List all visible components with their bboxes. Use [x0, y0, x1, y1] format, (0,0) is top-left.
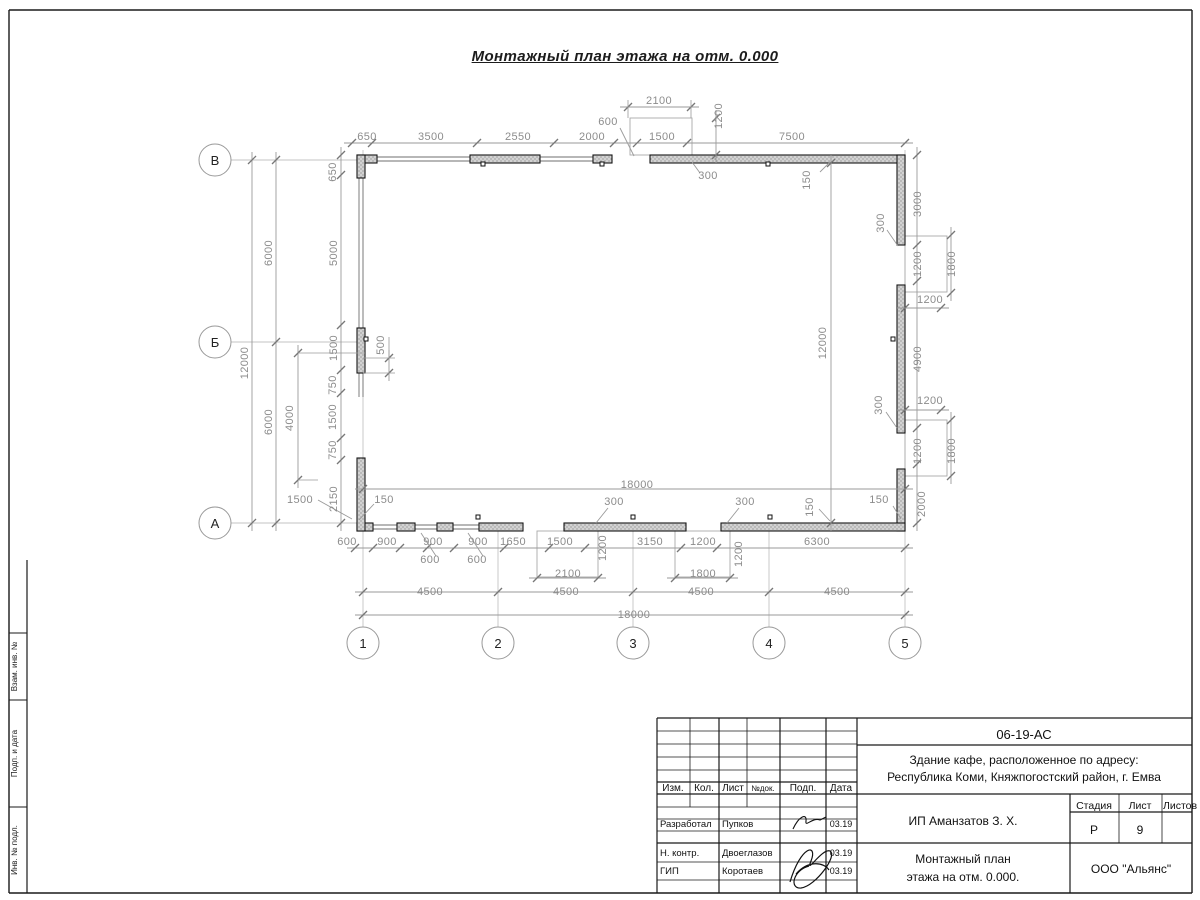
dimension-label: 1200: [912, 251, 924, 277]
signature: [793, 817, 826, 829]
date-value: 03.19: [830, 866, 853, 876]
dimension-label: 1200: [597, 535, 609, 561]
dimension-label: 7500: [779, 131, 805, 143]
dimension-label: 750: [327, 440, 339, 460]
dimension-label: 1800: [690, 568, 716, 580]
dimension-label: 3000: [912, 191, 924, 217]
dimension-label: 2000: [916, 491, 928, 517]
dimension-label: 750: [327, 375, 339, 395]
project-name: Здание кафе, расположенное по адресу:: [909, 753, 1138, 767]
dimension-label: 1200: [713, 103, 725, 129]
client-name: ИП Аманзатов З. Х.: [908, 814, 1017, 828]
label: Лист: [1129, 800, 1152, 812]
dimension-label: 6300: [804, 536, 830, 548]
dimension-label: 4900: [912, 346, 924, 372]
dimension-label: 6000: [263, 240, 275, 266]
leader-line: [727, 508, 739, 523]
dimension-label: 300: [604, 496, 624, 508]
dimension-label: 1200: [912, 438, 924, 464]
leader-line: [620, 128, 634, 156]
leader-line: [887, 230, 898, 246]
strip-label: Подп. и дата: [10, 729, 19, 777]
axis-label: 1: [359, 636, 366, 651]
dimension-label: 3150: [637, 536, 663, 548]
anchor-mark: [631, 515, 635, 519]
dimension-label: 1200: [917, 294, 943, 306]
doc-number: 06-19-АС: [996, 727, 1051, 742]
wall-segment: [357, 328, 365, 373]
wall-segment: [721, 523, 905, 531]
dimension-label: 12000: [817, 327, 829, 360]
axis-label: 5: [901, 636, 908, 651]
dimension-label: 300: [698, 170, 718, 182]
label: Кол.: [694, 783, 714, 794]
label: Подп.: [790, 783, 817, 794]
dimension-label: 1650: [500, 536, 526, 548]
anchor-mark: [766, 162, 770, 166]
leader-line: [819, 509, 830, 521]
anchor-mark: [364, 337, 368, 341]
wall-segment: [479, 523, 523, 531]
dimension-label: 1200: [917, 395, 943, 407]
dimension-label: 900: [377, 536, 397, 548]
dimension-label: 150: [869, 494, 889, 506]
dimension-label: 600: [598, 116, 618, 128]
dimension-label: 4500: [553, 586, 579, 598]
wall-segment: [897, 155, 905, 245]
axis-label: 2: [494, 636, 501, 651]
dimension-label: 1500: [327, 404, 339, 430]
plan-title: этажа на отм. 0.000.: [907, 870, 1020, 884]
dimension-label: 6000: [263, 409, 275, 435]
dimension-label: 1800: [946, 251, 958, 277]
dimension-label: 300: [873, 395, 885, 415]
dimension-label: 5000: [328, 240, 340, 266]
dimension-label: 1500: [649, 131, 675, 143]
dimension-label: 500: [375, 335, 387, 355]
date-value: 03.19: [830, 848, 853, 858]
wall-segment: [564, 523, 686, 531]
dimension-label: 4500: [417, 586, 443, 598]
wall-segment: [437, 523, 453, 531]
dimension-label: 600: [420, 554, 440, 566]
dimension-label: 4500: [688, 586, 714, 598]
axis-label: 4: [765, 636, 772, 651]
dimension-label: 150: [374, 494, 394, 506]
dimension-label: 150: [804, 497, 816, 517]
dimension-label: 2100: [555, 568, 581, 580]
anchor-mark: [600, 162, 604, 166]
label: Лист: [722, 783, 744, 794]
dimension-label: 1500: [328, 335, 340, 361]
role-label: Н. контр.: [660, 848, 699, 859]
role-label: ГИП: [660, 866, 679, 877]
dimension-label: 1200: [733, 541, 745, 567]
anchor-mark: [891, 337, 895, 341]
axis-label: Б: [211, 335, 220, 350]
dimension-label: 1500: [547, 536, 573, 548]
dimension-label: 300: [875, 213, 887, 233]
anchor-mark: [481, 162, 485, 166]
dimension-label: 18000: [618, 609, 651, 621]
dimension-label: 2150: [328, 486, 340, 512]
plan-title: Монтажный план: [915, 852, 1011, 866]
project-name: Республика Коми, Княжпогостский район, г…: [887, 770, 1161, 784]
dimension-label: 4000: [284, 405, 296, 431]
anchor-mark: [768, 515, 772, 519]
dimension-label: 4500: [824, 586, 850, 598]
role-label: Разработал: [660, 819, 712, 830]
dimension-label: 900: [423, 536, 443, 548]
dimension-label: 600: [337, 536, 357, 548]
person-name: Двоеглазов: [722, 848, 773, 859]
leader-line: [596, 508, 608, 523]
dimension-label: 1200: [690, 536, 716, 548]
dimension-label: 300: [735, 496, 755, 508]
dimension-label: 2000: [579, 131, 605, 143]
wall-segment: [357, 155, 365, 178]
dimension-label: 650: [327, 162, 339, 182]
drawing-title: Монтажный план этажа на отм. 0.000: [400, 48, 850, 65]
dimension-label: 900: [468, 536, 488, 548]
label: №док.: [751, 784, 774, 793]
dimension-label: 18000: [621, 479, 654, 491]
date-value: 03.19: [830, 819, 853, 829]
dimension-label: 1500: [287, 494, 313, 506]
person-name: Коротаев: [722, 866, 763, 877]
wall-segment: [397, 523, 415, 531]
wall-segment: [897, 469, 905, 531]
axis-label: В: [211, 153, 220, 168]
company-name: ООО "Альянс": [1091, 862, 1171, 876]
strip-label: Инв. № подл.: [10, 825, 19, 875]
dimension-label: 600: [467, 554, 487, 566]
dimension-label: 12000: [239, 347, 251, 380]
floor-plan-canvas: Взам. инв. №Подп. и датаИнв. № подл.ВБА1…: [0, 0, 1200, 900]
axis-label: 3: [629, 636, 636, 651]
dimension-label: 650: [357, 131, 377, 143]
stage-value: Р: [1090, 823, 1098, 837]
dimension-label: 2550: [505, 131, 531, 143]
wall-segment: [650, 155, 905, 163]
wall-segment: [357, 458, 365, 531]
person-name: Пупков: [722, 819, 753, 830]
label: Листов: [1163, 800, 1198, 812]
dimension-label: 3500: [418, 131, 444, 143]
dimension-label: 150: [801, 170, 813, 190]
leader-line: [886, 412, 897, 428]
label: Дата: [830, 783, 853, 794]
drawing-sheet: Взам. инв. №Подп. и датаИнв. № подл.ВБА1…: [0, 0, 1200, 900]
sheet-number: 9: [1137, 823, 1144, 837]
label: Стадия: [1076, 800, 1112, 812]
axis-label: А: [211, 516, 220, 531]
label: Изм.: [662, 783, 683, 794]
dimension-label: 2100: [646, 95, 672, 107]
dimension-label: 1800: [946, 438, 958, 464]
strip-label: Взам. инв. №: [10, 641, 19, 691]
anchor-mark: [476, 515, 480, 519]
